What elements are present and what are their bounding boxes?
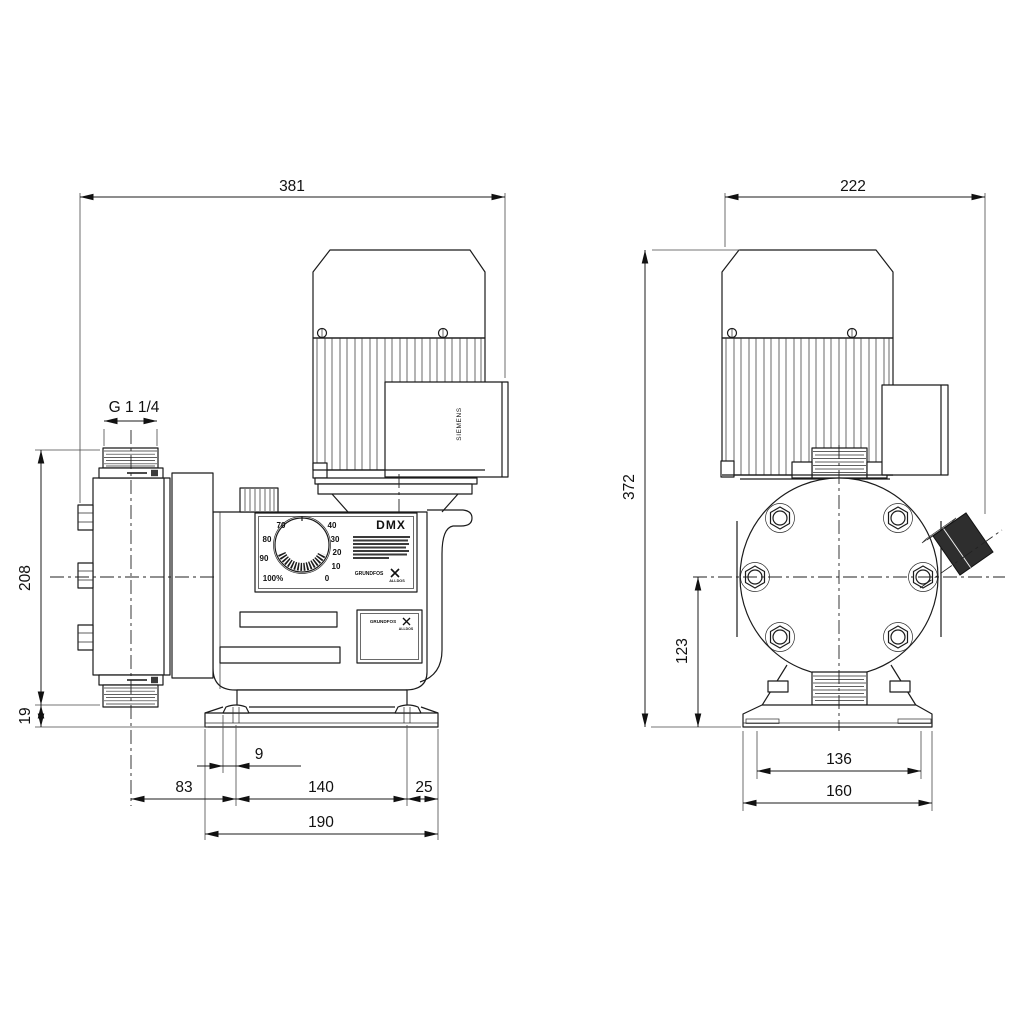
svg-text:GRUNDFOS: GRUNDFOS bbox=[370, 619, 396, 624]
dim-base-width-side: 190 bbox=[308, 814, 334, 831]
dim-overall-height: 372 bbox=[621, 474, 638, 500]
head-bolts-side bbox=[78, 505, 93, 650]
housing-right-contour bbox=[420, 510, 472, 682]
svg-text:ALLDOS: ALLDOS bbox=[389, 579, 405, 583]
side-view: SIEMENS bbox=[17, 178, 508, 840]
dim-base-height: 19 bbox=[17, 707, 34, 724]
pump-dimension-drawing: SIEMENS bbox=[0, 0, 1024, 1024]
dim-overall-width-side: 381 bbox=[279, 178, 305, 195]
head-body bbox=[93, 478, 170, 675]
motor-front bbox=[721, 250, 948, 479]
motor-side: SIEMENS bbox=[313, 250, 508, 512]
base-side bbox=[205, 690, 438, 727]
scale-80: 80 bbox=[263, 535, 272, 544]
gear-housing: 70 80 90 100% 0 10 20 30 40 DMX bbox=[213, 488, 472, 690]
dim-bolt-spacing-side: 140 bbox=[308, 779, 334, 796]
scale-40: 40 bbox=[328, 521, 337, 530]
technical-drawing-page: SIEMENS bbox=[0, 0, 1024, 1024]
head-backplate bbox=[172, 473, 213, 678]
scale-20: 20 bbox=[333, 548, 342, 557]
terminal-box-side: SIEMENS bbox=[385, 382, 508, 477]
fan-cover-screws-front bbox=[728, 329, 857, 338]
front-view: 222 372 123 136 160 bbox=[621, 178, 1005, 811]
svg-text:ALLDOS: ALLDOS bbox=[399, 627, 414, 631]
dim-head-to-bolt: 83 bbox=[175, 779, 192, 796]
terminal-box-front bbox=[882, 385, 948, 475]
dosing-head-front bbox=[737, 478, 1002, 707]
fan-cover-side bbox=[313, 250, 485, 338]
scale-70: 70 bbox=[277, 521, 286, 530]
dim-head-height: 208 bbox=[17, 565, 34, 591]
base-front bbox=[743, 705, 932, 727]
dosing-head-side bbox=[50, 430, 218, 806]
dim-slot-offset: 9 bbox=[255, 746, 264, 763]
base-plate bbox=[205, 713, 438, 727]
fan-cover-front bbox=[722, 250, 893, 338]
bolt-lug-left bbox=[223, 705, 249, 713]
pedestal bbox=[237, 690, 407, 713]
knurled-nut bbox=[933, 513, 993, 575]
scale-100: 100% bbox=[263, 574, 283, 583]
scale-30: 30 bbox=[331, 535, 340, 544]
scale-0: 0 bbox=[325, 574, 330, 583]
adjustment-cap[interactable] bbox=[240, 488, 278, 512]
dim-slot-spacing: 136 bbox=[826, 751, 852, 768]
fan-cover-screws bbox=[318, 329, 448, 338]
motor-flange-side bbox=[315, 474, 477, 512]
siemens-label: SIEMENS bbox=[456, 407, 463, 441]
dim-bolt-to-edge: 25 bbox=[415, 779, 432, 796]
dmx-label: DMX bbox=[376, 518, 406, 532]
top-thread-boss bbox=[792, 448, 887, 478]
dim-centerline-height: 123 bbox=[674, 638, 691, 664]
dim-overall-width-front: 222 bbox=[840, 178, 866, 195]
scale-10: 10 bbox=[332, 562, 341, 571]
dim-connection-thread: G 1 1/4 bbox=[109, 399, 160, 416]
dim-base-width-front: 160 bbox=[826, 783, 852, 800]
scale-90: 90 bbox=[260, 554, 269, 563]
svg-text:GRUNDFOS: GRUNDFOS bbox=[355, 571, 384, 577]
bolt-lug-right bbox=[395, 705, 421, 713]
